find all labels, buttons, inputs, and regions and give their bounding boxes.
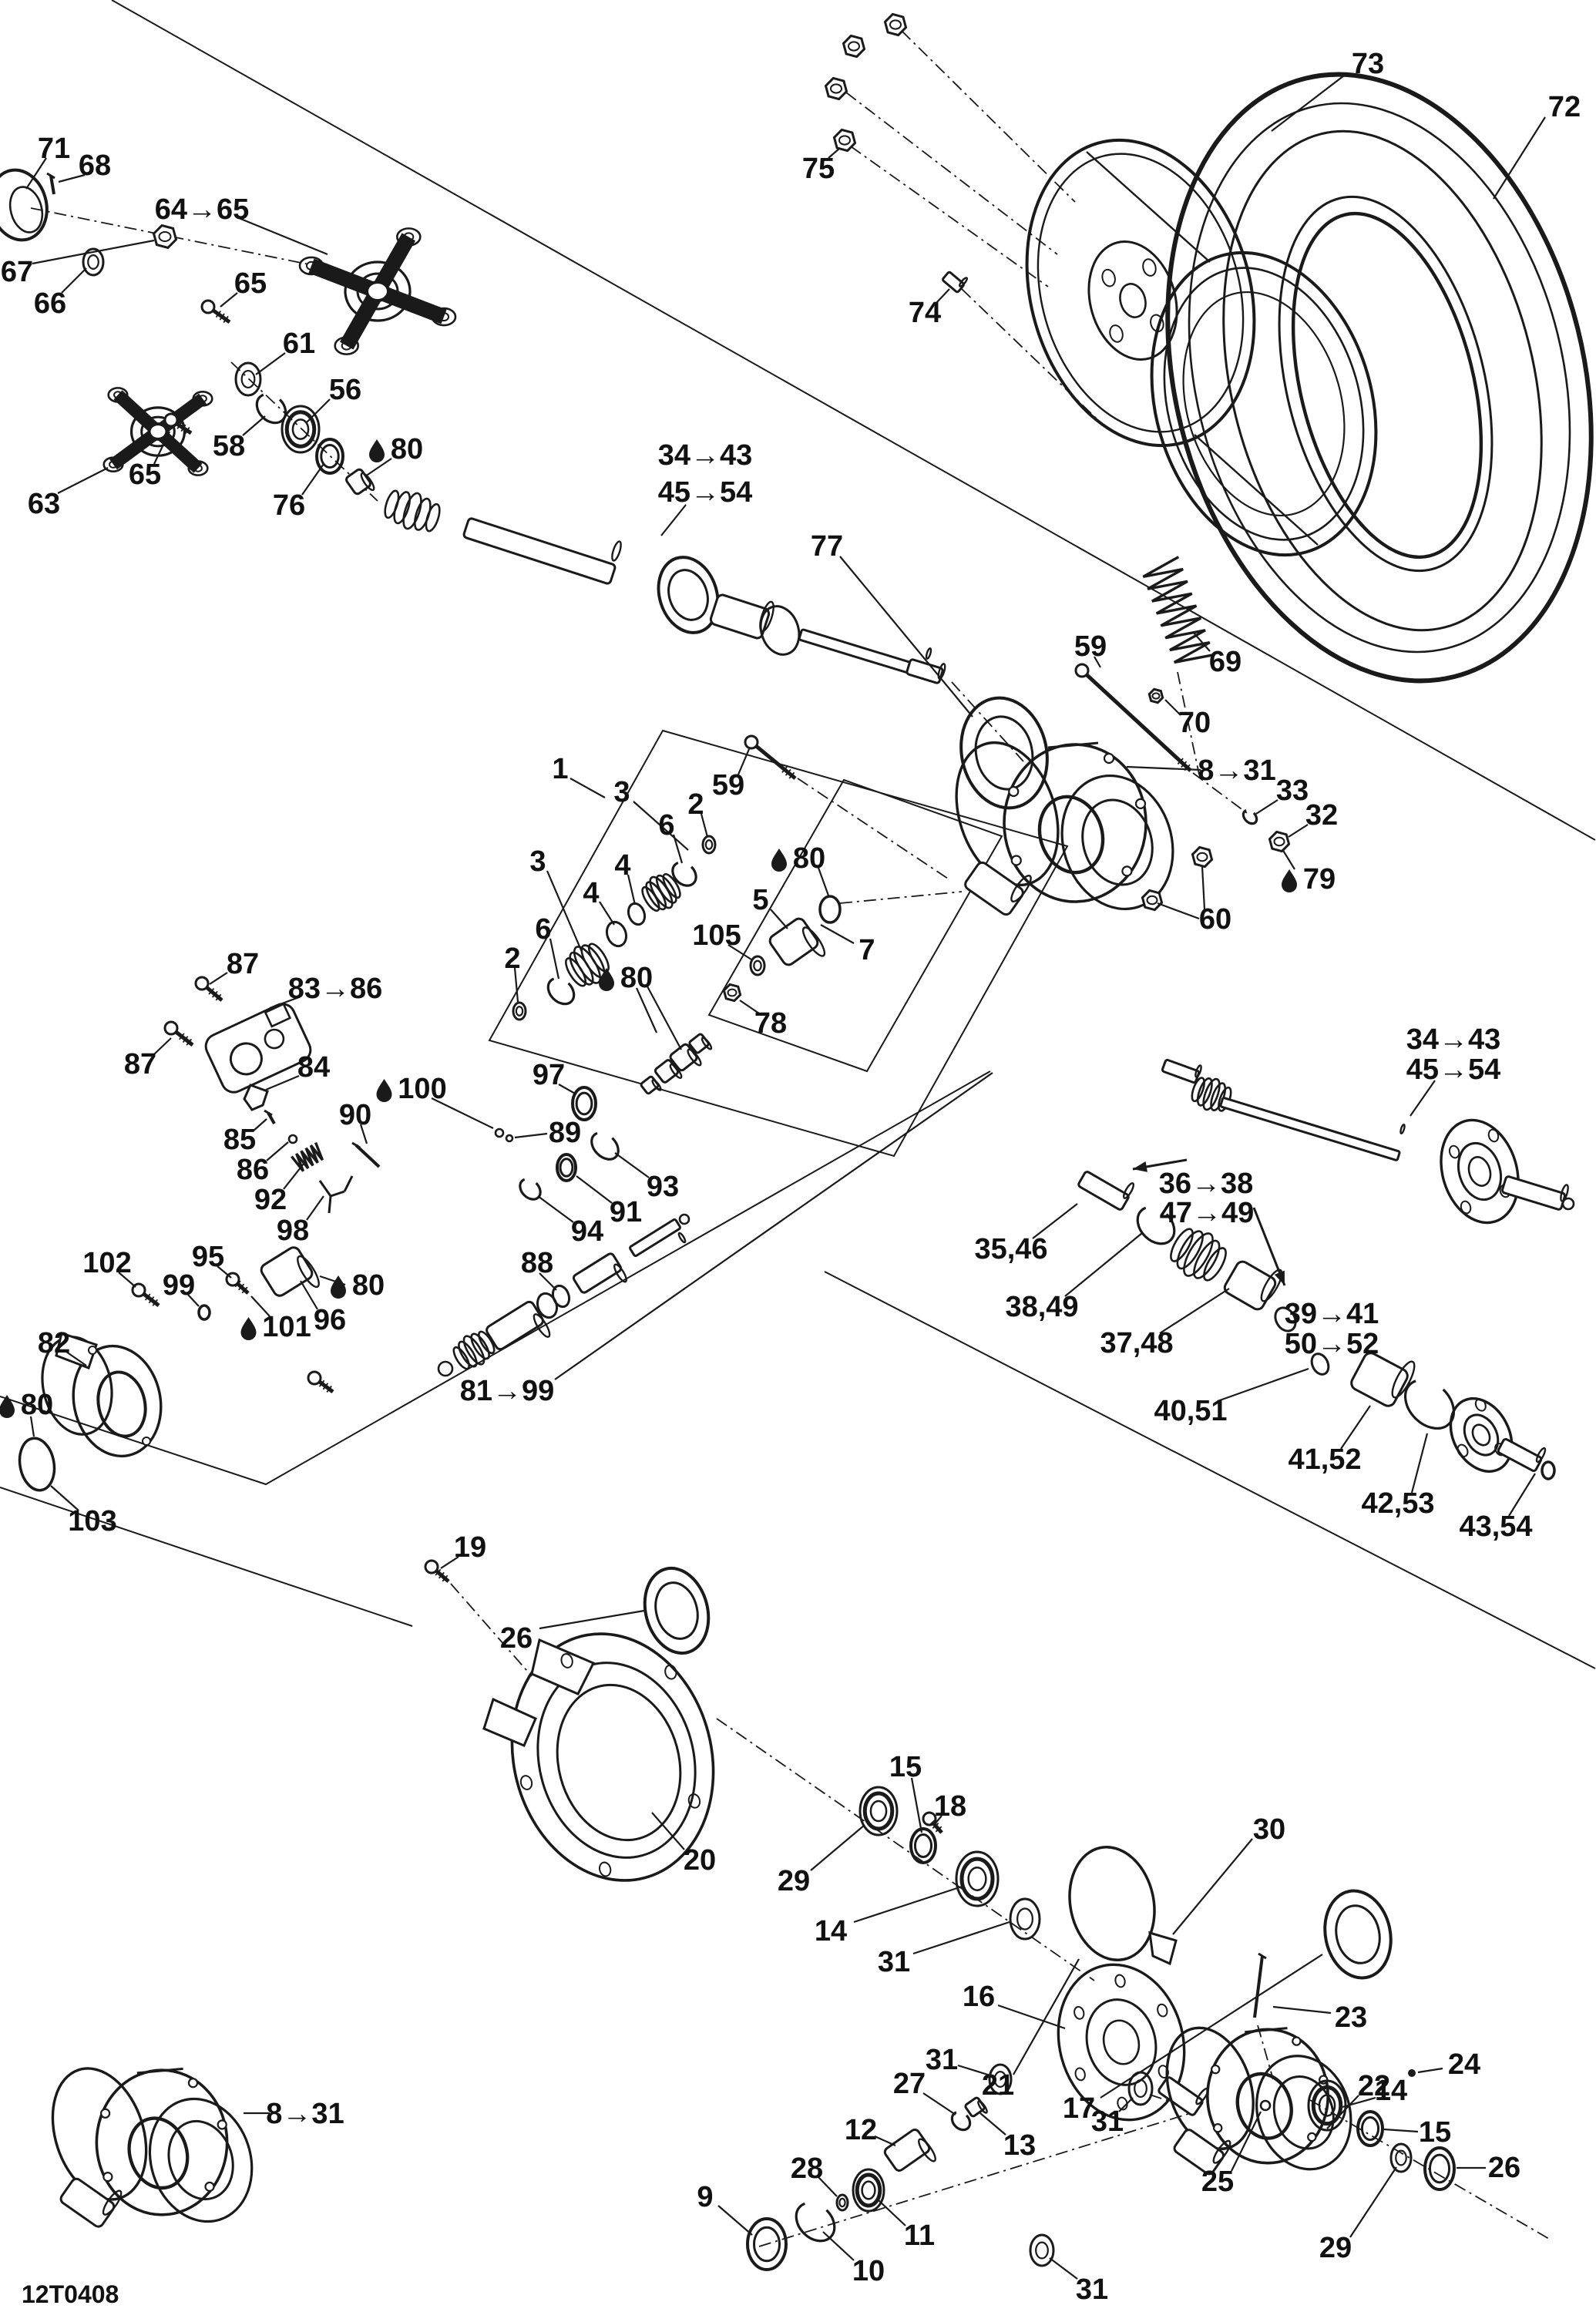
part-cotter-pin-68: [47, 173, 55, 194]
callout-text: 31: [878, 1946, 910, 1978]
callout-text: 100: [398, 1073, 446, 1105]
part-shaft-88-cap: [438, 1362, 452, 1376]
part-axle-shaft-34: [463, 518, 623, 585]
callout-text: 87: [124, 1048, 156, 1080]
callout-text: 3: [613, 776, 630, 808]
callout-10: 10: [823, 2232, 885, 2287]
callout-103: 103: [51, 1486, 117, 1537]
callout-42,53: 42,53: [1361, 1433, 1434, 1520]
part-lug-nut-75a: [885, 14, 906, 35]
callout-102: 102: [82, 1247, 136, 1287]
oil-droplet-icon: [331, 1275, 346, 1299]
callout-45→54: 45→54: [1406, 1054, 1501, 1116]
part-key-30: [1150, 1933, 1176, 1964]
callout-34→43: 34→43: [1406, 1023, 1501, 1056]
part-nut-32: [1269, 832, 1289, 851]
callout-text: 27: [893, 2068, 926, 2100]
part-snap-ring-94: [516, 1175, 545, 1204]
part-oring-99: [199, 1306, 210, 1319]
callout-text: 58: [213, 430, 245, 462]
callout-text: 11: [904, 2220, 935, 2252]
part-dot-24: [1408, 2069, 1416, 2077]
callout-75: 75: [802, 148, 840, 185]
callout-text: 26: [500, 1622, 533, 1655]
callout-text: 73: [1352, 48, 1384, 80]
callout-text: 59: [1074, 630, 1107, 663]
callout-64→65: 64→65: [155, 193, 328, 254]
callout-text: 98: [277, 1215, 309, 1247]
callout-80: 80: [599, 962, 681, 1050]
callout-43,54: 43,54: [1459, 1474, 1535, 1543]
callout-80: 80: [365, 433, 423, 476]
callout-text: 88: [521, 1247, 553, 1279]
callout-4: 4: [614, 849, 635, 905]
callout-text: 63: [28, 488, 60, 520]
callout-24: 24: [1418, 2048, 1480, 2081]
part-spring-69: [1141, 557, 1214, 669]
part-seal-97: [573, 1087, 596, 1120]
callout-text: 95: [192, 1241, 224, 1273]
part-nut-78: [724, 984, 740, 1000]
part-oring-21: [1060, 1839, 1164, 1968]
part-axle2-spline: [1162, 1060, 1202, 1084]
callout-65: 65: [220, 267, 267, 307]
oil-droplet-icon: [599, 968, 614, 991]
callout-text: 6: [658, 809, 674, 842]
part-bolt-87b: [165, 1022, 193, 1045]
callout-text: 67: [1, 256, 33, 288]
callout-text: 4: [583, 877, 599, 909]
part-bearing-29a: [860, 1787, 897, 1835]
callout-text: 26: [1488, 2152, 1520, 2184]
part-bearing-14a: [956, 1852, 998, 1906]
part-bolt-59b: [745, 736, 795, 778]
callout-text: 43,54: [1459, 1511, 1532, 1543]
callout-text: 13: [1003, 2129, 1036, 2162]
callout-79: 79: [1282, 849, 1336, 896]
part-seal-15a: [911, 1829, 936, 1863]
callout-text: 60: [1199, 903, 1231, 936]
part-nut-60a: [1192, 847, 1211, 866]
parts-diagram-page: 7168676664→6565615856768063657372757434→…: [0, 0, 1596, 2312]
part-ball-89b: [506, 1135, 512, 1141]
callout-94: 94: [538, 1196, 603, 1248]
callout-text: 23: [1335, 2001, 1367, 2034]
part-bolt-65a: [202, 301, 230, 323]
callout-text: 80: [391, 433, 423, 465]
part-seal-91: [557, 1154, 576, 1181]
part-bolt-19: [425, 1561, 449, 1581]
callout-text: 30: [1253, 1813, 1285, 1846]
oil-droplet-icon: [1282, 869, 1297, 892]
callout-text: 14: [1375, 2075, 1407, 2107]
callout-text: 84: [297, 1051, 330, 1084]
callout-text: 45→54: [1406, 1054, 1501, 1086]
callout-text: 72: [1548, 91, 1581, 123]
part-washer-31e: [1030, 2235, 1053, 2266]
part-joint-35-boot: [1167, 1226, 1230, 1284]
callout-28: 28: [791, 2152, 837, 2196]
callout-text: 80: [620, 962, 653, 994]
callout-text: 77: [811, 530, 843, 563]
callout-text: 19: [454, 1531, 486, 1564]
callout-text: 7: [858, 934, 875, 966]
callout-text: 59: [712, 769, 744, 801]
callout-11: 11: [879, 2200, 935, 2252]
callout-3: 3: [613, 776, 688, 850]
callout-80: 80: [771, 842, 828, 896]
callout-26: 26: [1457, 2152, 1520, 2184]
callout-text: 42,53: [1361, 1487, 1434, 1520]
part-coupler-5: [768, 916, 828, 967]
callout-88: 88: [521, 1247, 556, 1290]
callout-8→31: 8→31: [244, 2098, 344, 2130]
part-spring-92: [291, 1143, 324, 1173]
callout-105: 105: [692, 919, 751, 959]
callout-58: 58: [213, 416, 265, 462]
part-ring-10: [788, 2195, 842, 2248]
callout-text: 76: [273, 489, 305, 522]
callout-text: 87: [227, 948, 259, 980]
callout-63: 63: [28, 468, 108, 520]
callout-72: 72: [1494, 91, 1581, 199]
callout-78: 78: [740, 1000, 787, 1040]
part-shaft-88-body: [485, 1300, 552, 1351]
part-shaft-88-end: [680, 1215, 689, 1224]
callout-14: 14: [815, 1887, 962, 1947]
callout-text: 34→43: [658, 439, 753, 472]
callout-text: 34→43: [1406, 1023, 1501, 1056]
callout-text: 85: [223, 1124, 256, 1156]
callout-35,46: 35,46: [974, 1204, 1077, 1265]
callout-36→38: 36→38: [1159, 1168, 1254, 1200]
callout-5: 5: [752, 884, 788, 929]
callout-74: 74: [909, 289, 949, 329]
part-shaft-12: [883, 2128, 938, 2173]
callout-97: 97: [533, 1059, 576, 1094]
part-axle2-end: [1563, 1198, 1574, 1209]
exploded-parts-diagram: 7168676664→6565615856768063657372757434→…: [0, 0, 1596, 2312]
callout-text: 2: [687, 788, 704, 821]
part-bolt-99b: [308, 1372, 333, 1392]
callout-21: 21: [982, 1959, 1079, 2102]
callout-text: 29: [1319, 2232, 1352, 2264]
callout-83→86: 83→86: [270, 973, 382, 1008]
part-boot-3a: [640, 872, 684, 913]
callout-text: 31: [1091, 2105, 1124, 2138]
callout-text: 9: [697, 2181, 713, 2213]
callout-100: 100: [377, 1073, 494, 1128]
callout-7: 7: [821, 925, 875, 966]
callout-45→54: 45→54: [658, 476, 753, 536]
part-pin-23: [1255, 1954, 1266, 2018]
callout-text: 75: [802, 153, 835, 185]
callout-text: 39→41: [1285, 1298, 1379, 1330]
part-seal-15b: [1358, 2112, 1383, 2146]
callout-text: 15: [1419, 2116, 1451, 2149]
callout-text: 79: [1303, 863, 1336, 896]
callout-87: 87: [210, 948, 259, 984]
callout-29: 29: [778, 1825, 865, 1897]
callout-text: 17: [1063, 2092, 1095, 2125]
callout-text: 64→65: [155, 193, 250, 226]
callout-66: 66: [34, 268, 86, 320]
part-sleeve-96: [259, 1245, 322, 1299]
callout-text: 61: [283, 328, 315, 360]
part-axle-boot-34: [382, 489, 442, 533]
callout-40,51: 40,51: [1154, 1369, 1309, 1427]
callout-text: 2: [504, 943, 520, 975]
callout-text: 35,46: [974, 1233, 1047, 1265]
callout-1: 1: [552, 753, 605, 798]
part-oring-80b: [820, 896, 840, 922]
part-bearing-11: [853, 2169, 884, 2211]
callout-31: 31: [1091, 2098, 1133, 2138]
callout-text: 80: [793, 842, 825, 875]
callout-80: 80: [320, 1269, 385, 1302]
callout-6: 6: [658, 809, 682, 863]
callout-59: 59: [1074, 630, 1107, 667]
callout-99: 99: [163, 1269, 199, 1306]
part-wheel-rim-73: [993, 113, 1410, 582]
callout-text: 3: [529, 845, 546, 878]
callout-text: 69: [1209, 646, 1242, 678]
callout-26: 26: [500, 1611, 644, 1655]
callout-61: 61: [256, 328, 315, 375]
callout-73: 73: [1272, 48, 1384, 131]
callout-19: 19: [441, 1531, 486, 1568]
callout-text: 18: [934, 1790, 966, 1823]
callout-text: 65: [234, 267, 267, 300]
part-pin-85: [264, 1111, 274, 1124]
oil-droplet-icon: [369, 439, 385, 462]
part-lug-nut-75b: [843, 35, 864, 56]
callout-text: 15: [889, 1751, 922, 1783]
callout-59: 59: [712, 749, 749, 801]
callout-text: 103: [68, 1505, 116, 1537]
part-washer-2b: [513, 1003, 526, 1020]
part-oring-43: [1542, 1462, 1554, 1479]
part-ring-4b: [603, 919, 629, 949]
part-seal-26b: [1425, 2148, 1454, 2189]
callout-text: 71: [38, 133, 70, 165]
part-shaft-88-spline: [573, 1252, 629, 1294]
callout-50→52: 50→52: [1285, 1328, 1379, 1360]
callout-text: 80: [352, 1269, 385, 1302]
part-bracket-84: [244, 1085, 267, 1110]
callout-text: 40,51: [1154, 1395, 1227, 1427]
part-wheel-hub-64: [300, 228, 455, 354]
callout-text: 8→31: [1198, 754, 1275, 787]
callout-text: 65: [129, 459, 161, 491]
callout-101: 101: [241, 1296, 311, 1343]
callout-text: 6: [535, 913, 551, 946]
axis-lines: [31, 31, 1549, 2246]
part-differential-8-31b: [37, 2056, 267, 2235]
part-nut-60b: [1142, 890, 1161, 909]
part-shift-fork-98: [320, 1176, 352, 1213]
callout-text: 1: [552, 753, 568, 785]
callout-30: 30: [1173, 1813, 1285, 1934]
part-bearing-56: [282, 406, 319, 452]
part-axle2-shaft: [1220, 1097, 1405, 1161]
part-lug-nut-75d: [834, 129, 855, 150]
callout-text: 94: [571, 1215, 603, 1248]
part-bolt-102: [133, 1284, 159, 1306]
part-washer-2a: [703, 836, 715, 853]
part-joint-35-spline: [1077, 1171, 1135, 1211]
callout-2: 2: [504, 943, 520, 1002]
callout-87: 87: [124, 1038, 171, 1080]
callout-text: 78: [754, 1007, 787, 1040]
part-oring-103: [15, 1436, 58, 1494]
callout-37,48: 37,48: [1100, 1289, 1229, 1359]
callout-text: 32: [1305, 799, 1338, 832]
callout-text: 10: [852, 2255, 885, 2287]
callout-text: 41,52: [1288, 1443, 1361, 1476]
part-nut-67: [154, 226, 176, 248]
callout-89: 89: [515, 1117, 581, 1149]
callout-text: 14: [815, 1915, 847, 1947]
callout-80: 80: [0, 1389, 53, 1437]
callout-text: 66: [34, 287, 66, 320]
part-hub-43-stub: [1497, 1438, 1547, 1471]
callout-39→41: 39→41: [1285, 1298, 1379, 1330]
callout-text: 83→86: [288, 973, 383, 1005]
callout-text: 47→49: [1160, 1197, 1255, 1229]
part-lug-nut-75c: [825, 78, 846, 99]
part-ring-4a: [626, 901, 647, 926]
callout-67: 67: [1, 240, 154, 288]
part-valve-stem-74: [942, 271, 969, 292]
callout-text: 105: [692, 919, 741, 952]
callout-text: 74: [909, 297, 941, 329]
callout-text: 82: [38, 1327, 70, 1359]
callout-text: 4: [614, 849, 630, 882]
part-cv-joint-34: [710, 593, 777, 640]
callout-text: 28: [791, 2152, 823, 2185]
callout-16: 16: [963, 1981, 1065, 2028]
callout-34→43: 34→43: [658, 439, 753, 472]
part-joint-37-body: [1222, 1259, 1285, 1312]
part-washer-105: [751, 956, 764, 975]
callout-69: 69: [1193, 632, 1242, 678]
part-ball-86: [289, 1135, 297, 1143]
part-ring-6a: [668, 858, 701, 890]
callout-76: 76: [273, 464, 324, 522]
callout-text: 31: [926, 2044, 958, 2076]
part-cv-flange-34: [649, 549, 727, 640]
callout-text: 89: [549, 1117, 581, 1149]
part-nut-70: [1149, 689, 1162, 702]
callout-41,52: 41,52: [1288, 1406, 1370, 1476]
callout-70: 70: [1165, 700, 1211, 739]
part-ball-89a: [496, 1129, 503, 1137]
part-washer-29b: [1391, 2144, 1411, 2172]
oil-droplet-icon: [241, 1317, 257, 1340]
oil-droplet-icon: [771, 849, 787, 872]
callout-text: 16: [963, 1981, 995, 2013]
callout-8→31: 8→31: [1127, 754, 1276, 787]
callout-4: 4: [583, 877, 614, 925]
callout-77: 77: [811, 530, 973, 717]
callout-text: 24: [1448, 2048, 1480, 2081]
oil-droplet-icon: [377, 1079, 392, 1102]
callout-85: 85: [223, 1119, 267, 1156]
callout-text: 33: [1276, 775, 1309, 807]
part-axle2-flange: [1429, 1111, 1530, 1232]
callout-text: 25: [1201, 2166, 1234, 2198]
callout-18: 18: [934, 1790, 966, 1825]
separator-lines: [0, 0, 1595, 1668]
callout-15: 15: [889, 1751, 922, 1833]
part-pin-90: [352, 1143, 379, 1167]
sheet-code-text: 12T0408: [22, 2280, 119, 2308]
part-washer-28: [837, 2195, 848, 2210]
callout-95: 95: [192, 1241, 231, 1278]
callout-text: 56: [329, 374, 361, 406]
callout-text: 8→31: [266, 2098, 344, 2130]
part-bolt-59a: [1076, 664, 1191, 771]
callout-text: 96: [314, 1304, 346, 1336]
callout-text: 31: [1076, 2273, 1108, 2306]
callout-text: 36→38: [1159, 1168, 1254, 1200]
oil-droplet-icon: [0, 1395, 15, 1418]
part-ball-25: [1261, 2101, 1270, 2110]
callout-text: 37,48: [1100, 1327, 1173, 1359]
part-seal-26a: [636, 1561, 717, 1661]
callout-12: 12: [845, 2114, 895, 2146]
callout-56: 56: [307, 374, 361, 422]
part-bolt-87a: [196, 977, 222, 1000]
callout-text: 93: [647, 1171, 679, 1203]
part-snap-ring-93: [586, 1127, 623, 1164]
callout-text: 50→52: [1285, 1328, 1379, 1360]
part-seal-17: [1317, 1885, 1399, 1984]
callout-text: 102: [82, 1247, 131, 1279]
callout-29: 29: [1319, 2167, 1396, 2264]
callout-text: 101: [262, 1311, 311, 1343]
callout-2: 2: [687, 788, 707, 837]
callout-text: 70: [1178, 707, 1211, 739]
callout-15: 15: [1384, 2116, 1451, 2149]
part-hub-16-stub: [1158, 2076, 1210, 2116]
callout-31: 31: [878, 1922, 1010, 1978]
callout-47→49: 47→49: [1160, 1197, 1255, 1229]
callout-text: 80: [21, 1389, 53, 1421]
callout-text: 38,49: [1005, 1291, 1078, 1323]
callout-90: 90: [339, 1099, 371, 1144]
part-dust-cap-71: [0, 163, 55, 247]
callout-text: 29: [778, 1865, 810, 1897]
sheet-code: 12T0408: [22, 2280, 119, 2308]
part-clip-33: [1241, 808, 1259, 826]
callout-text: 20: [684, 1844, 716, 1877]
callout-text: 91: [610, 1196, 642, 1228]
callout-31: 31: [1050, 2258, 1108, 2306]
callout-text: 68: [79, 150, 111, 182]
callout-9: 9: [697, 2181, 752, 2235]
callout-text: 86: [237, 1154, 269, 1186]
callout-text: 81→99: [460, 1375, 555, 1407]
callout-text: 45→54: [658, 476, 753, 509]
callout-text: 92: [254, 1184, 287, 1216]
callout-text: 90: [339, 1099, 371, 1131]
part-axle-spline-34: [906, 659, 946, 684]
callout-text: 5: [752, 884, 768, 916]
callout-text: 99: [163, 1269, 195, 1302]
callout-13: 13: [980, 2113, 1036, 2162]
